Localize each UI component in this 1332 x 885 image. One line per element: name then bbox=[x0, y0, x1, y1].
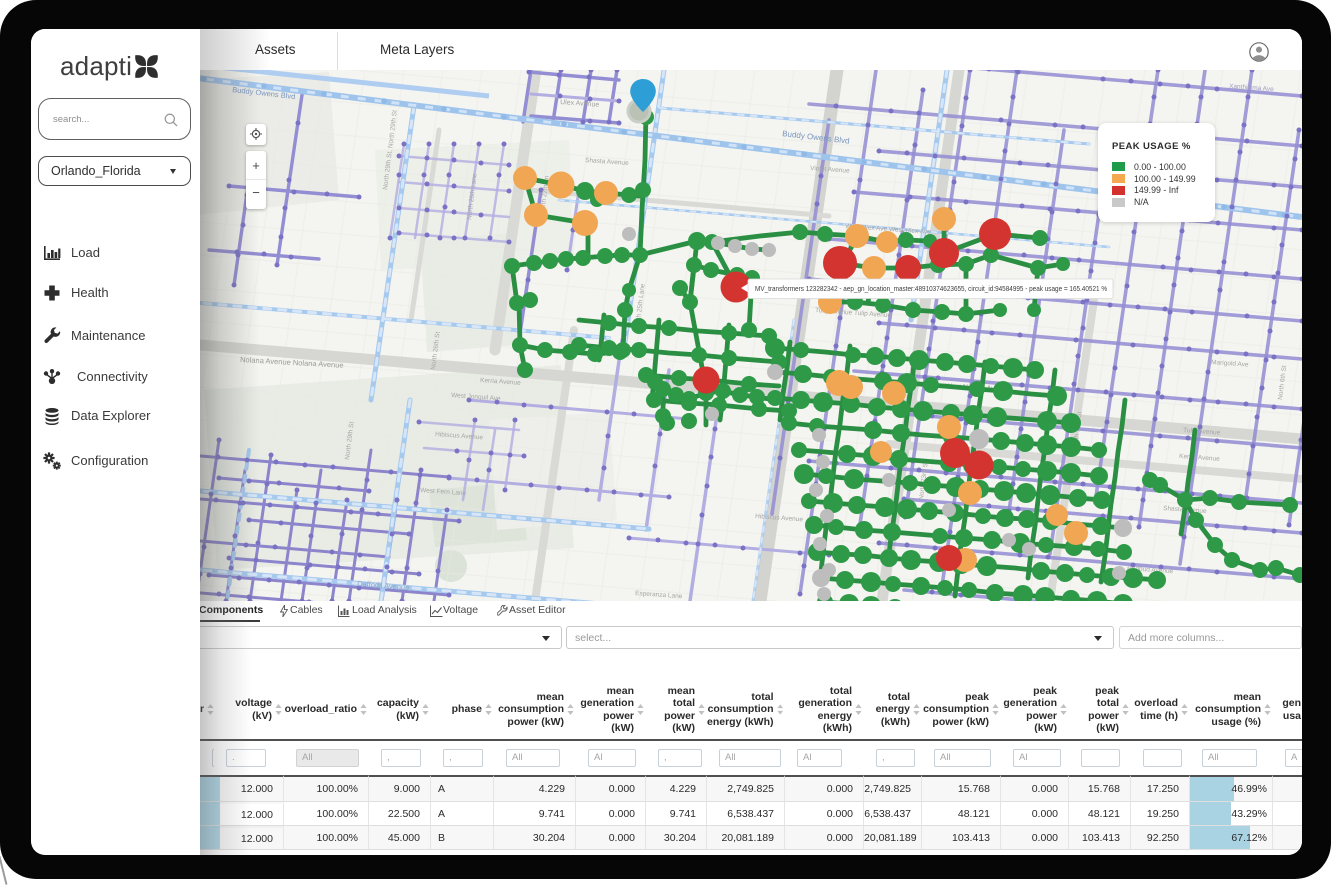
svg-text:MV_transformers 123282342 - ae: MV_transformers 123282342 - aep_gn_locat… bbox=[755, 284, 1107, 293]
